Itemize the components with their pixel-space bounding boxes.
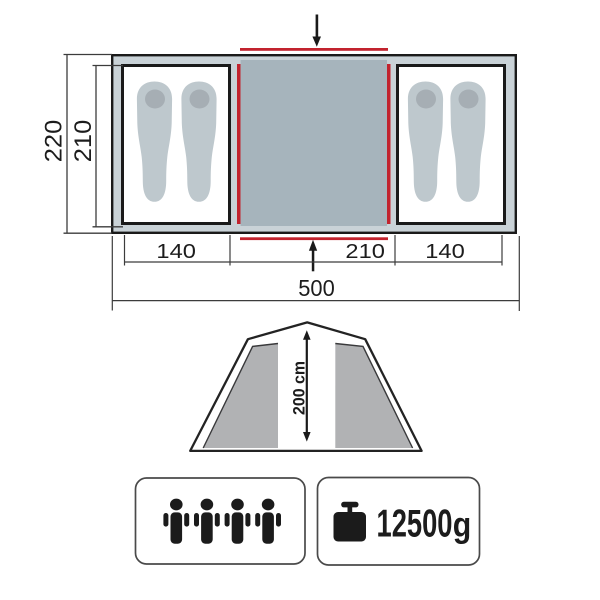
svg-text:220: 220 (41, 120, 68, 163)
svg-text:210: 210 (70, 120, 97, 163)
svg-text:210: 210 (345, 240, 385, 263)
svg-text:12500: 12500 (377, 503, 453, 546)
svg-text:140: 140 (156, 240, 196, 263)
svg-text:140: 140 (425, 240, 465, 263)
svg-text:g: g (453, 506, 472, 545)
svg-text:500: 500 (298, 275, 335, 301)
svg-text:200 cm: 200 cm (289, 361, 308, 415)
